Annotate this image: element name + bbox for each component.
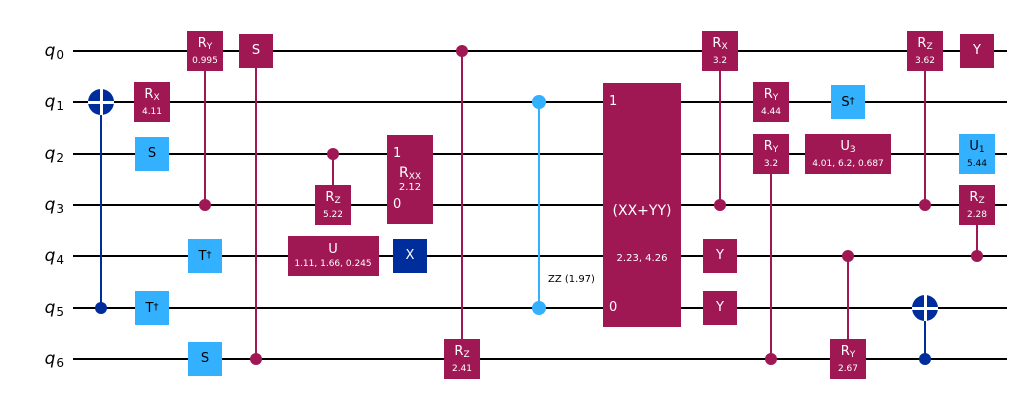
crz-gate-control-dot (971, 250, 983, 262)
xx-plus-yy-gate-label: (XX+YY) (603, 203, 681, 219)
s-gate: S (135, 137, 169, 171)
u3-gate: U34.01, 6.2, 0.687 (805, 134, 891, 174)
cs-gate-control-line (255, 51, 257, 359)
u1-gate: U15.44 (959, 134, 995, 174)
xx-plus-yy-gate: (XX+YY)2.23, 4.2610 (603, 83, 681, 327)
quantum-circuit-diagram: q0q1q2q3q4q5q6RX4.11ST†RY0.995T†SSRZ5.22… (0, 0, 1021, 401)
crx-gate: RX3.2 (702, 31, 738, 71)
qubit-label-q6: q6 (14, 347, 64, 371)
rxx-gate: RXX2.1210 (387, 135, 433, 224)
cx-gate-control-dot (919, 353, 931, 365)
y-gate: Y (703, 239, 737, 273)
tdg-gate: T† (188, 239, 222, 273)
xx-plus-yy-gate-port-0: 0 (609, 299, 617, 317)
qubit-label-q1: q1 (14, 90, 64, 114)
crz-gate: RZ2.41 (444, 339, 480, 379)
cx-gate-line (100, 102, 102, 308)
cry-gate-control-dot (199, 199, 211, 211)
plus-horizontal (88, 101, 114, 104)
rxx-gate-port-1: 1 (393, 145, 401, 163)
rzz-gate-dot-top (532, 95, 546, 109)
y-gate: Y (960, 34, 994, 68)
rxx-gate-param: 2.12 (387, 182, 433, 194)
qubit-label-q4: q4 (14, 244, 64, 268)
xx-plus-yy-gate-param: 2.23, 4.26 (603, 253, 681, 265)
xx-plus-yy-gate-port-1: 1 (609, 93, 617, 111)
u-gate: U1.11, 1.66, 0.245 (288, 236, 379, 276)
cx-gate-target-icon (912, 295, 938, 321)
crz-gate-control-dot (919, 199, 931, 211)
crz-gate: RZ3.62 (907, 31, 943, 71)
cry-gate: RY0.995 (187, 31, 223, 71)
crz-gate: RZ5.22 (315, 185, 351, 225)
ry-gate: RY4.44 (753, 82, 789, 122)
crz-gate-control-dot (456, 45, 468, 57)
crz-gate-control-line (461, 51, 463, 359)
cry-gate-control-line (204, 51, 206, 205)
cry-gate-control-dot (842, 250, 854, 262)
cs-gate-control-dot (250, 353, 262, 365)
cry-gate-control-dot (765, 353, 777, 365)
qubit-label-q3: q3 (14, 193, 64, 217)
x-gate: X (393, 239, 427, 273)
s-gate: S (188, 342, 222, 376)
rzz-gate-label: ZZ (1.97) (548, 273, 595, 287)
cx-gate-control-dot (95, 302, 107, 314)
plus-horizontal (912, 307, 938, 310)
crz-gate: RZ2.28 (959, 185, 995, 225)
qubit-label-q5: q5 (14, 296, 64, 320)
rxx-gate-port-0: 0 (393, 196, 401, 214)
rzz-gate-dot-bottom (532, 301, 546, 315)
cx-gate-target-icon (88, 89, 114, 115)
qubit-label-q0: q0 (14, 39, 64, 63)
rx-gate: RX4.11 (134, 82, 170, 122)
crz-gate-control-line (924, 51, 926, 205)
tdg-gate: T† (135, 291, 169, 325)
cry-gate: RY2.67 (830, 339, 866, 379)
cs-gate: S (239, 34, 273, 68)
cry-gate-control-line (770, 154, 772, 359)
qubit-label-q2: q2 (14, 142, 64, 166)
crz-gate-control-dot (327, 148, 339, 160)
y-gate: Y (703, 291, 737, 325)
crx-gate-control-line (719, 51, 721, 205)
sdg-gate: S† (831, 85, 865, 119)
rzz-gate-line (538, 102, 540, 308)
qubit-wire-q3 (73, 204, 1007, 206)
crx-gate-control-dot (714, 199, 726, 211)
cry-gate: RY3.2 (753, 134, 789, 174)
